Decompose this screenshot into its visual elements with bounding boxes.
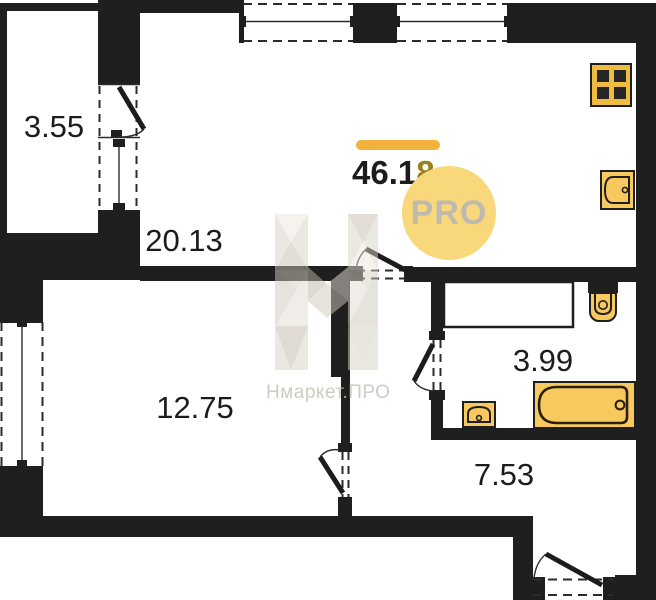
ventilation-shaft	[444, 282, 573, 327]
stove-burner	[614, 70, 626, 82]
toilet-bowl	[591, 294, 615, 320]
bathroom-sink-basin	[464, 403, 494, 426]
wall-segment	[338, 497, 352, 517]
kitchen-sink	[600, 170, 635, 210]
wall-segment	[429, 331, 445, 340]
bathroom-door	[414, 340, 441, 391]
pro-badge: PRO	[402, 166, 496, 260]
total-area-main: 46.1	[352, 154, 416, 191]
stove	[590, 63, 632, 107]
balcony-door-window	[98, 85, 144, 212]
wall-segment	[410, 267, 656, 282]
wall-segment	[0, 3, 98, 11]
wall-segment	[239, 0, 244, 43]
bedroom-door	[320, 450, 349, 497]
wall-segment	[404, 266, 413, 282]
entrance-door	[533, 554, 614, 595]
pro-badge-label: PRO	[411, 194, 488, 233]
stove-burner	[597, 87, 609, 99]
kitchen-sink-basin	[602, 172, 633, 208]
wall-segment	[431, 282, 443, 337]
wall-segment	[98, 0, 140, 84]
wall-segment	[636, 3, 656, 600]
wall-segment	[353, 3, 397, 43]
watermark-logo	[272, 212, 382, 372]
wall-segment	[513, 537, 533, 600]
wall-segment	[0, 233, 43, 323]
wall-segment	[0, 516, 533, 537]
window-left	[2, 319, 43, 468]
room-area-label-hallway: 7.53	[444, 457, 564, 493]
stove-burner	[614, 87, 626, 99]
wall-segment	[603, 577, 615, 600]
floor-plan: Нмаркет.ПРО 3.55 20.13 12.75 3.99 7.53 4…	[0, 0, 656, 600]
toilet	[589, 292, 617, 322]
watermark-text: Нмаркет.ПРО	[266, 382, 388, 404]
wall-segment	[507, 3, 656, 43]
room-area-label-bedroom: 12.75	[135, 390, 255, 426]
room-area-label-living: 20.13	[124, 223, 244, 259]
stove-burner	[597, 70, 609, 82]
total-area-accent-bar	[356, 140, 440, 150]
bathtub	[533, 381, 636, 429]
room-area-label-bathroom: 3.99	[483, 343, 603, 379]
wall-segment	[532, 577, 545, 600]
room-area-label-balcony: 3.55	[0, 109, 114, 145]
wall-segment	[338, 443, 352, 452]
bathtub-basin	[535, 383, 634, 427]
bathroom-sink	[462, 401, 496, 428]
